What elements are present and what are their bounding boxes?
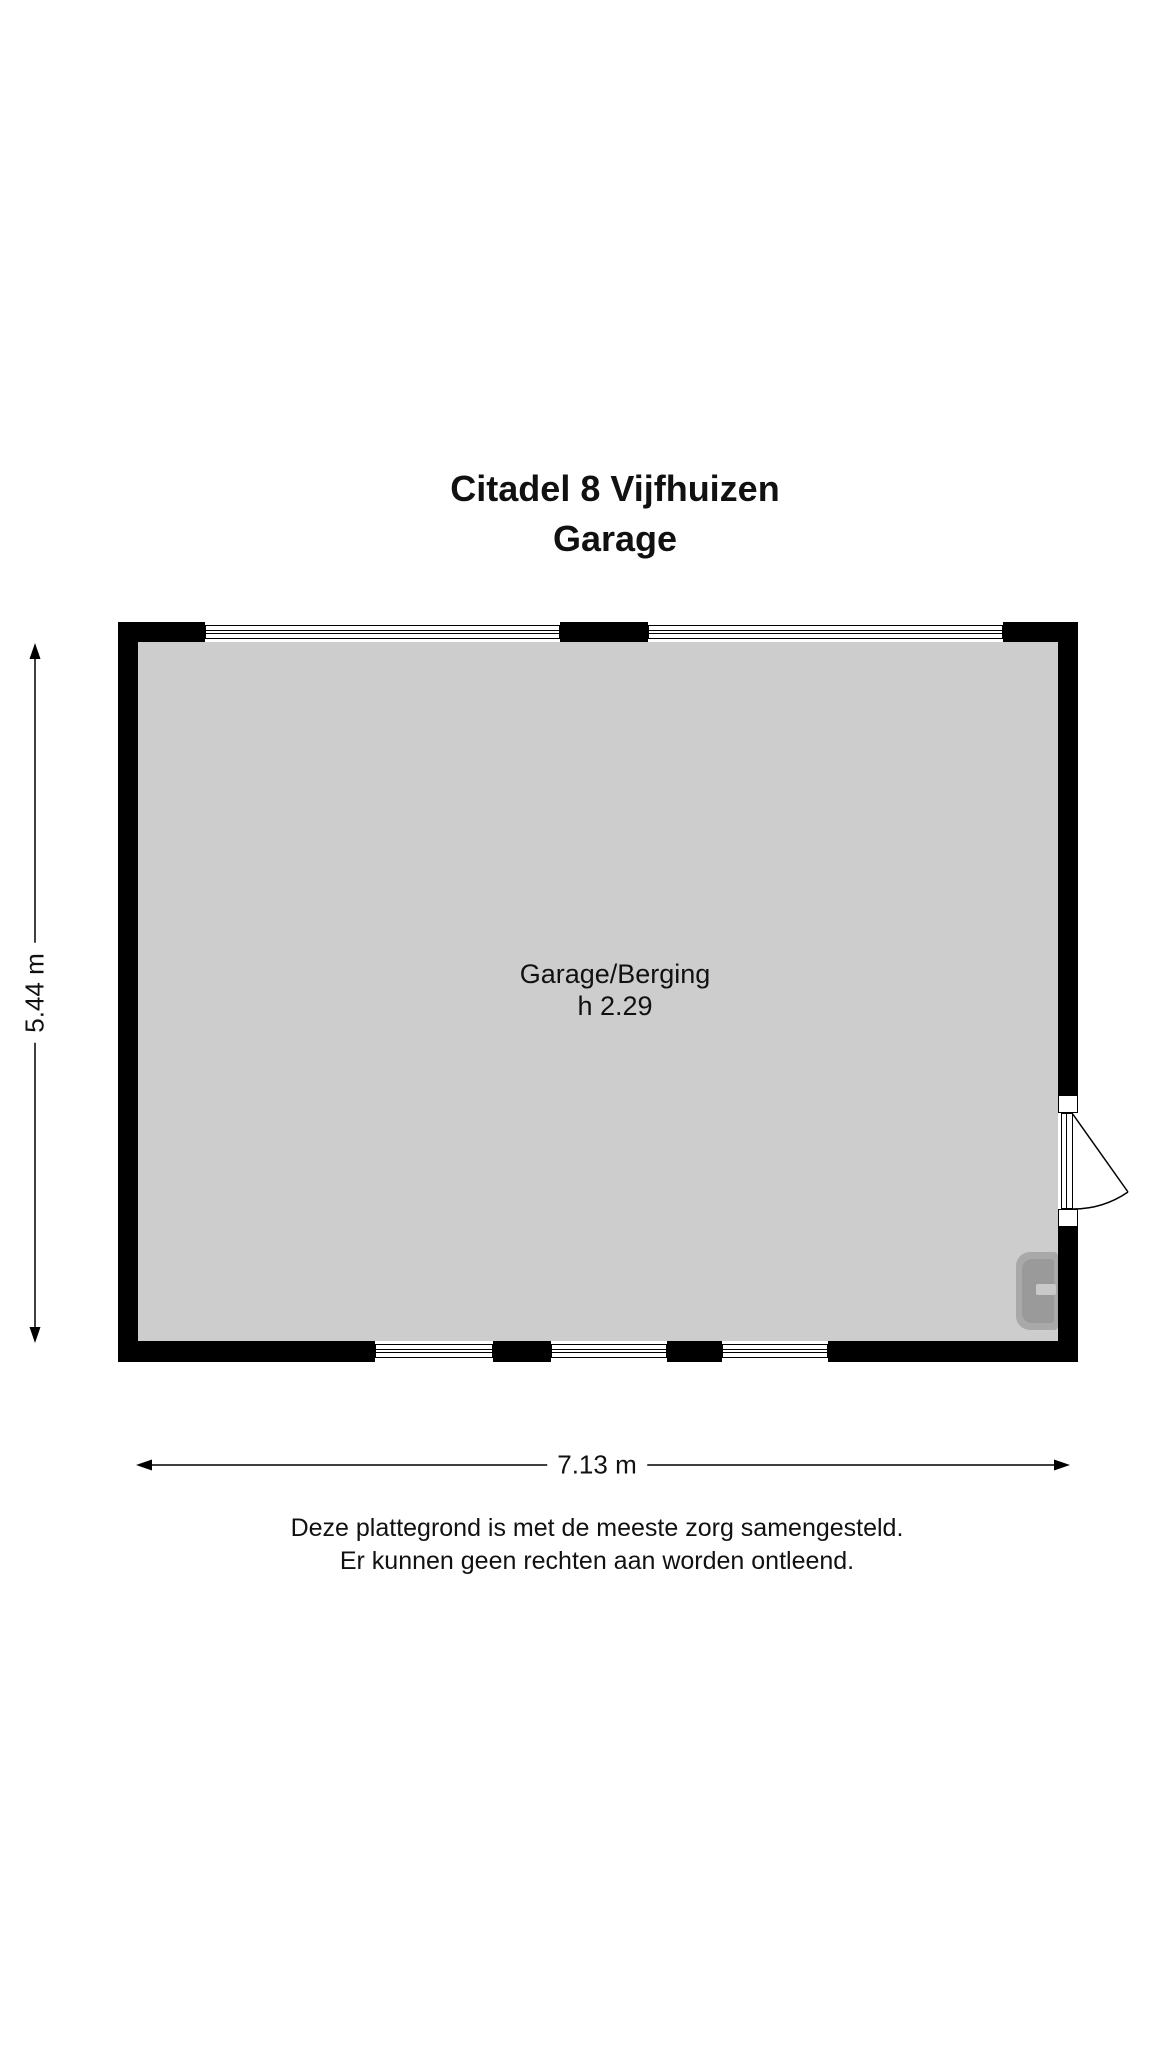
door-leaf (1061, 1113, 1073, 1209)
disclaimer-line-2: Er kunnen geen rechten aan worden ontlee… (291, 1545, 904, 1578)
wall-segment (560, 622, 648, 642)
door-jamb (1058, 1209, 1078, 1227)
wall-segment (667, 1341, 722, 1362)
wall-segment (118, 1341, 375, 1362)
boiler-fixture (1016, 1252, 1058, 1330)
window (205, 625, 560, 639)
width-dimension-label: 7.13 m (547, 1450, 647, 1481)
room-name: Garage/Berging (520, 958, 711, 990)
room-label: Garage/Berging h 2.29 (520, 958, 711, 1022)
window (722, 1344, 828, 1358)
room-ceiling-height: h 2.29 (520, 990, 711, 1022)
door-jamb (1058, 1095, 1078, 1113)
page-title: Citadel 8 Vijfhuizen Garage (450, 464, 779, 564)
floorplan-page: Citadel 8 Vijfhuizen Garage (0, 0, 1152, 2048)
wall-segment (118, 622, 138, 1362)
title-floor: Garage (450, 514, 779, 564)
title-address: Citadel 8 Vijfhuizen (450, 464, 779, 514)
window (648, 625, 1003, 639)
window (375, 1344, 493, 1358)
wall-segment (828, 1341, 1078, 1362)
wall-segment (493, 1341, 551, 1362)
wall-segment (1058, 622, 1078, 1095)
door-swing-icon (1072, 1113, 1128, 1209)
disclaimer: Deze plattegrond is met de meeste zorg s… (291, 1512, 904, 1578)
height-dimension-label: 5.44 m (20, 943, 51, 1043)
window (551, 1344, 667, 1358)
wall-segment (1058, 1227, 1078, 1362)
disclaimer-line-1: Deze plattegrond is met de meeste zorg s… (291, 1512, 904, 1545)
boiler-fixture-label (1036, 1284, 1056, 1295)
